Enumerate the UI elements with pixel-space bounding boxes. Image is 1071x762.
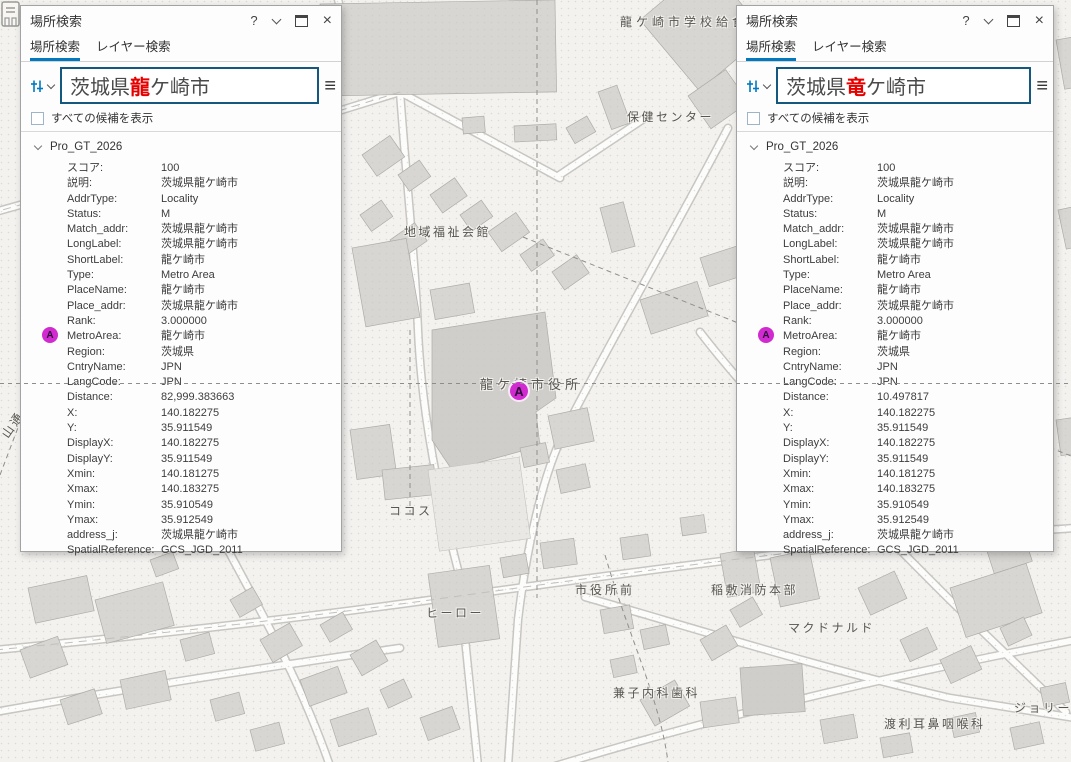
tab-locate[interactable]: 場所検索 [30,36,80,61]
attribute-value: 35.911549 [161,421,341,436]
attribute-row: address_j:茨城県龍ケ崎市 [67,528,341,543]
attribute-row: LongLabel:茨城県龍ケ崎市 [783,237,1053,252]
attribute-label: Ymin: [67,498,161,513]
attribute-label: ShortLabel: [67,253,161,268]
result-attributes: スコア:100説明:茨城県龍ケ崎市AddrType:LocalityStatus… [783,161,1053,559]
attribute-label: Ymax: [67,513,161,528]
attribute-label: Rank: [783,314,877,329]
result-marker-icon[interactable]: A [758,327,774,343]
search-input[interactable]: 茨城県竜ケ崎市 [776,67,1031,104]
chevron-down-icon[interactable] [47,80,55,88]
attribute-value: 35.912549 [161,513,341,528]
attribute-label: スコア: [783,161,877,176]
attribute-label: Distance: [783,390,877,405]
show-all-candidates-row: すべての候補を表示 [737,107,1053,131]
attribute-row: Distance:82,999.383663 [67,390,341,405]
attribute-value: 龍ケ崎市 [161,283,341,298]
search-input[interactable]: 茨城県龍ケ崎市 [60,67,319,104]
attribute-row: Ymin:35.910549 [67,498,341,513]
attribute-label: AddrType: [67,192,161,207]
pane-tabs: 場所検索 レイヤー検索 [737,33,1053,62]
attribute-value: 龍ケ崎市 [161,329,341,344]
attribute-value: GCS_JGD_2011 [877,543,1053,558]
attribute-label: LongLabel: [783,237,877,252]
float-window-icon[interactable] [295,15,308,27]
result-marker-icon[interactable]: A [42,327,58,343]
attribute-value: 100 [161,161,341,176]
attribute-value: 35.911549 [877,452,1053,467]
search-text: 茨城県 [70,71,130,100]
attribute-value: Locality [161,192,341,207]
attribute-value: 龍ケ崎市 [877,329,1053,344]
pane-title: 場所検索 [30,11,82,30]
attribute-label: スコア: [67,161,161,176]
attribute-value: 龍ケ崎市 [161,253,341,268]
pane-titlebar[interactable]: 場所検索 ? × [21,6,341,33]
attribute-label: Ymin: [783,498,877,513]
attribute-value: 3.000000 [877,314,1053,329]
attribute-label: SpatialReference: [67,543,161,558]
attribute-label: X: [67,406,161,421]
attribute-row: Ymin:35.910549 [783,498,1053,513]
tab-locate[interactable]: 場所検索 [746,36,796,61]
attribute-label: DisplayY: [67,452,161,467]
attribute-row: DisplayY:35.911549 [783,452,1053,467]
close-icon[interactable]: × [323,15,332,27]
attribute-row: DisplayX:140.182275 [67,436,341,451]
attribute-value: 茨城県龍ケ崎市 [161,176,341,191]
attribute-label: PlaceName: [783,283,877,298]
search-options-icon[interactable] [745,78,761,94]
attribute-label: Xmax: [67,482,161,497]
attribute-row: PlaceName:龍ケ崎市 [783,283,1053,298]
attribute-label: X: [783,406,877,421]
attribute-label: Region: [783,345,877,360]
checkbox-label: すべての候補を表示 [51,110,153,126]
attribute-row: SpatialReference:GCS_JGD_2011 [783,543,1053,558]
locator-group[interactable]: Pro_GT_2026 [737,132,1053,155]
chevron-down-icon[interactable] [271,14,281,24]
attribute-row: PlaceName:龍ケ崎市 [67,283,341,298]
search-text: ケ崎市 [866,71,926,100]
attribute-label: Xmin: [783,467,877,482]
attribute-label: Status: [783,207,877,222]
pane-titlebar[interactable]: 場所検索 ? × [737,6,1053,33]
attribute-row: ShortLabel:龍ケ崎市 [67,253,341,268]
attribute-label: CntryName: [783,360,877,375]
attribute-value: 龍ケ崎市 [877,253,1053,268]
attribute-label: DisplayY: [783,452,877,467]
attribute-value: 茨城県龍ケ崎市 [161,528,341,543]
attribute-value: 10.497817 [877,390,1053,405]
attribute-value: 茨城県龍ケ崎市 [877,528,1053,543]
attribute-label: LongLabel: [67,237,161,252]
attribute-row: Match_addr:茨城県龍ケ崎市 [67,222,341,237]
show-all-candidates-checkbox[interactable] [747,112,760,125]
attribute-label: Match_addr: [67,222,161,237]
attribute-row: 説明:茨城県龍ケ崎市 [67,176,341,191]
attribute-value: GCS_JGD_2011 [161,543,341,558]
help-icon[interactable]: ? [962,13,969,28]
attribute-row: Xmin:140.181275 [783,467,1053,482]
result-attributes: スコア:100説明:茨城県龍ケ崎市AddrType:LocalityStatus… [67,161,341,559]
chevron-down-icon[interactable] [763,80,771,88]
attribute-label: PlaceName: [67,283,161,298]
attribute-row: 説明:茨城県龍ケ崎市 [783,176,1053,191]
attribute-label: Region: [67,345,161,360]
menu-icon[interactable]: ≡ [324,76,336,96]
attribute-label: Status: [67,207,161,222]
attribute-row: Place_addr:茨城県龍ケ崎市 [783,299,1053,314]
attribute-row: address_j:茨城県龍ケ崎市 [783,528,1053,543]
attribute-value: JPN [877,360,1053,375]
attribute-value: 茨城県龍ケ崎市 [161,222,341,237]
close-icon[interactable]: × [1035,15,1044,27]
menu-icon[interactable]: ≡ [1036,76,1048,96]
boundary-dashed-line [0,383,1071,384]
attribute-row: Y:35.911549 [783,421,1053,436]
attribute-value: 35.911549 [161,452,341,467]
search-row: 茨城県龍ケ崎市 ≡ [21,62,341,107]
attribute-row: AddrType:Locality [783,192,1053,207]
attribute-value: 140.182275 [877,406,1053,421]
attribute-row: DisplayY:35.911549 [67,452,341,467]
attribute-label: ShortLabel: [783,253,877,268]
attribute-value: Metro Area [877,268,1053,283]
attribute-row: DisplayX:140.182275 [783,436,1053,451]
attribute-row: X:140.182275 [783,406,1053,421]
search-text-highlight: 龍 [130,71,150,100]
document-icon[interactable] [0,0,22,27]
attribute-value: 140.181275 [161,467,341,482]
attribute-label: Match_addr: [783,222,877,237]
attribute-row: Place_addr:茨城県龍ケ崎市 [67,299,341,314]
attribute-row: Rank:3.000000 [783,314,1053,329]
search-text: 茨城県 [786,71,846,100]
attribute-row: X:140.182275 [67,406,341,421]
attribute-row: Status:M [67,207,341,222]
attribute-label: Rank: [67,314,161,329]
attribute-value: JPN [161,360,341,375]
attribute-label: 説明: [783,176,877,191]
attribute-value: 茨城県龍ケ崎市 [161,237,341,252]
attribute-value: 茨城県龍ケ崎市 [877,299,1053,314]
attribute-label: MetroArea: [783,329,877,344]
attribute-value: 35.910549 [161,498,341,513]
attribute-value: 140.183275 [161,482,341,497]
attribute-label: AddrType: [783,192,877,207]
attribute-label: SpatialReference: [783,543,877,558]
help-icon[interactable]: ? [250,13,257,28]
attribute-label: 説明: [67,176,161,191]
attribute-value: 140.182275 [877,436,1053,451]
attribute-value: 茨城県龍ケ崎市 [877,176,1053,191]
attribute-label: Xmax: [783,482,877,497]
attribute-label: MetroArea: [67,329,161,344]
attribute-row: LongLabel:茨城県龍ケ崎市 [67,237,341,252]
attribute-row: CntryName:JPN [783,360,1053,375]
attribute-value: 100 [877,161,1053,176]
attribute-value: 茨城県 [161,345,341,360]
attribute-label: Ymax: [783,513,877,528]
attribute-row: Ymax:35.912549 [783,513,1053,528]
chevron-collapse-icon[interactable] [34,142,42,150]
attribute-row: Match_addr:茨城県龍ケ崎市 [783,222,1053,237]
attribute-value: 龍ケ崎市 [877,283,1053,298]
attribute-label: address_j: [67,528,161,543]
attribute-value: M [161,207,341,222]
tab-layer-search[interactable]: レイヤー検索 [812,36,887,61]
attribute-label: Type: [67,268,161,283]
attribute-row: Xmax:140.183275 [67,482,341,497]
attribute-row: AddrType:Locality [67,192,341,207]
attribute-value: 82,999.383663 [161,390,341,405]
attribute-row: MetroArea:龍ケ崎市 [67,329,341,344]
attribute-row: Type:Metro Area [783,268,1053,283]
attribute-value: Locality [877,192,1053,207]
attribute-row: Status:M [783,207,1053,222]
chevron-collapse-icon[interactable] [750,142,758,150]
attribute-label: DisplayX: [67,436,161,451]
attribute-row: MetroArea:龍ケ崎市 [783,329,1053,344]
attribute-label: Xmin: [67,467,161,482]
attribute-value: 35.910549 [877,498,1053,513]
attribute-value: M [877,207,1053,222]
show-all-candidates-row: すべての候補を表示 [21,107,341,131]
attribute-value: 140.181275 [877,467,1053,482]
attribute-label: Distance: [67,390,161,405]
attribute-value: 茨城県龍ケ崎市 [877,222,1053,237]
attribute-value: Metro Area [161,268,341,283]
attribute-row: Rank:3.000000 [67,314,341,329]
attribute-row: Xmin:140.181275 [67,467,341,482]
pane-tabs: 場所検索 レイヤー検索 [21,33,341,62]
attribute-row: Ymax:35.912549 [67,513,341,528]
attribute-value: 35.911549 [877,421,1053,436]
attribute-row: Region:茨城県 [67,345,341,360]
attribute-label: address_j: [783,528,877,543]
pane-title: 場所検索 [746,11,798,30]
attribute-value: 茨城県 [877,345,1053,360]
attribute-value: 茨城県龍ケ崎市 [161,299,341,314]
attribute-value: 茨城県龍ケ崎市 [877,237,1053,252]
attribute-label: Y: [67,421,161,436]
attribute-row: Type:Metro Area [67,268,341,283]
checkbox-label: すべての候補を表示 [767,110,869,126]
locator-group-label: Pro_GT_2026 [50,141,122,153]
search-text-highlight: 竜 [846,71,866,100]
attribute-row: Y:35.911549 [67,421,341,436]
locator-group-label: Pro_GT_2026 [766,141,838,153]
attribute-value: 3.000000 [161,314,341,329]
attribute-row: Region:茨城県 [783,345,1053,360]
float-window-icon[interactable] [1007,15,1020,27]
attribute-label: CntryName: [67,360,161,375]
chevron-down-icon[interactable] [983,14,993,24]
attribute-value: 140.182275 [161,406,341,421]
attribute-label: DisplayX: [783,436,877,451]
search-text: ケ崎市 [150,71,210,100]
locate-pane-right: 場所検索 ? × 場所検索 レイヤー検索 茨城県竜ケ崎市 ≡ [736,5,1054,552]
attribute-row: ShortLabel:龍ケ崎市 [783,253,1053,268]
search-row: 茨城県竜ケ崎市 ≡ [737,62,1053,107]
show-all-candidates-checkbox[interactable] [31,112,44,125]
attribute-row: CntryName:JPN [67,360,341,375]
attribute-label: Place_addr: [783,299,877,314]
attribute-label: Type: [783,268,877,283]
attribute-row: SpatialReference:GCS_JGD_2011 [67,543,341,558]
attribute-value: 140.183275 [877,482,1053,497]
attribute-row: Xmax:140.183275 [783,482,1053,497]
attribute-row: スコア:100 [67,161,341,176]
attribute-value: 35.912549 [877,513,1053,528]
attribute-value: 140.182275 [161,436,341,451]
locate-pane-left: 場所検索 ? × 場所検索 レイヤー検索 茨城県龍ケ崎市 ≡ [20,5,342,552]
app-window: 龍ケ崎市学校給食セ保健センター地域福祉会館龍ケ崎市役所ココス市役所前稲敷消防本部… [0,0,1071,762]
locator-group[interactable]: Pro_GT_2026 [21,132,341,155]
attribute-label: Place_addr: [67,299,161,314]
attribute-row: スコア:100 [783,161,1053,176]
attribute-row: Distance:10.497817 [783,390,1053,405]
search-options-icon[interactable] [29,78,45,94]
tab-layer-search[interactable]: レイヤー検索 [96,36,171,61]
attribute-label: Y: [783,421,877,436]
